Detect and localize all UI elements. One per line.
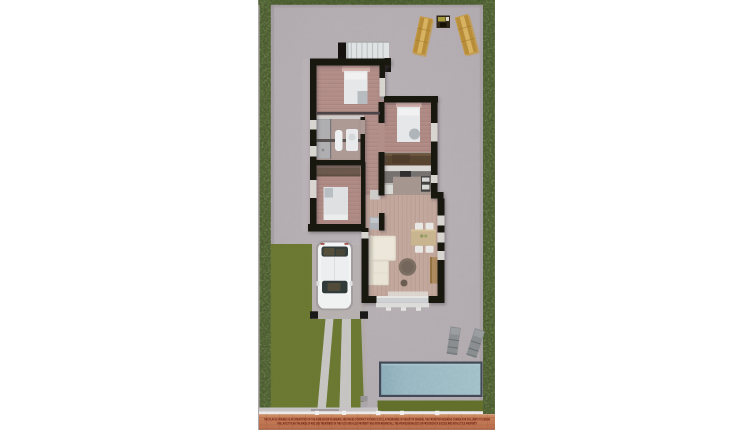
svg-text:THE LAYOUT PLAN THE MADE OF AN: THE LAYOUT PLAN THE MADE OF AND USE TREA… bbox=[277, 421, 478, 425]
